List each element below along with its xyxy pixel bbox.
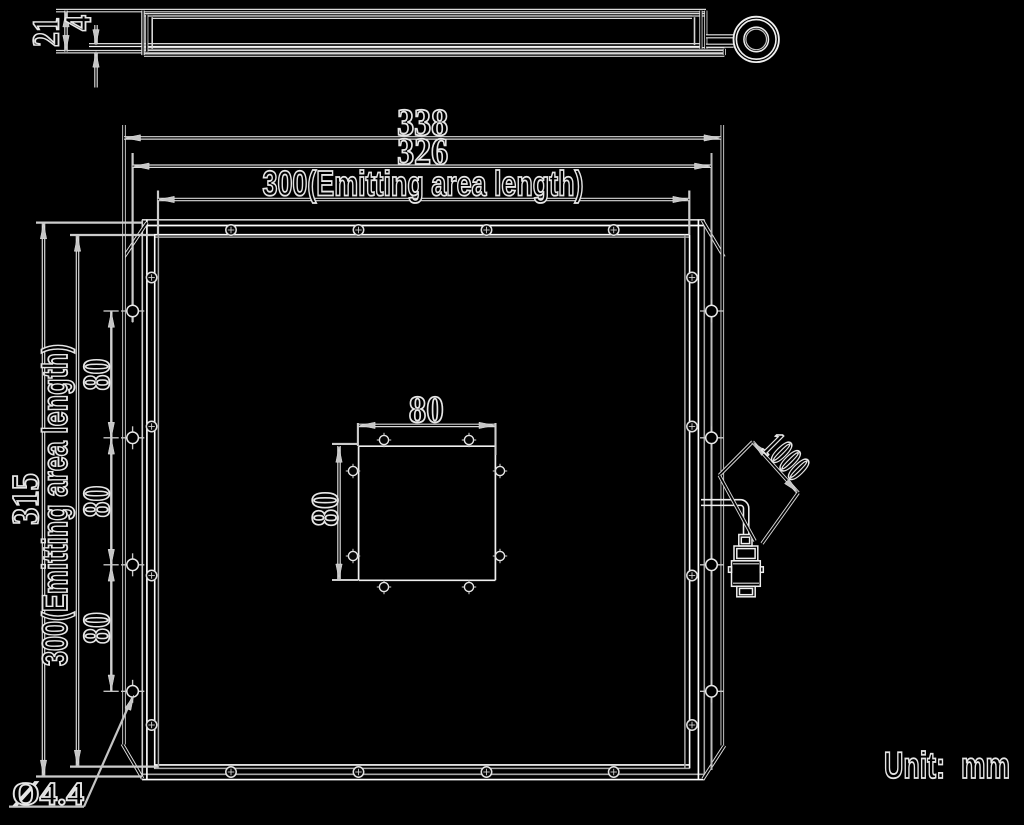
- svg-text:80: 80: [409, 389, 444, 431]
- svg-text:mm: mm: [961, 745, 1010, 786]
- svg-text:80: 80: [76, 612, 118, 644]
- svg-text:80: 80: [76, 359, 118, 391]
- svg-text:4: 4: [58, 15, 100, 31]
- svg-text:80: 80: [76, 486, 118, 518]
- svg-text:Unit:: Unit:: [884, 745, 945, 786]
- svg-text:80: 80: [305, 492, 347, 527]
- svg-text:300(Emitting area length): 300(Emitting area length): [35, 344, 75, 666]
- svg-text:300(Emitting area length): 300(Emitting area length): [263, 164, 584, 204]
- svg-text:Ø4.4: Ø4.4: [12, 777, 84, 813]
